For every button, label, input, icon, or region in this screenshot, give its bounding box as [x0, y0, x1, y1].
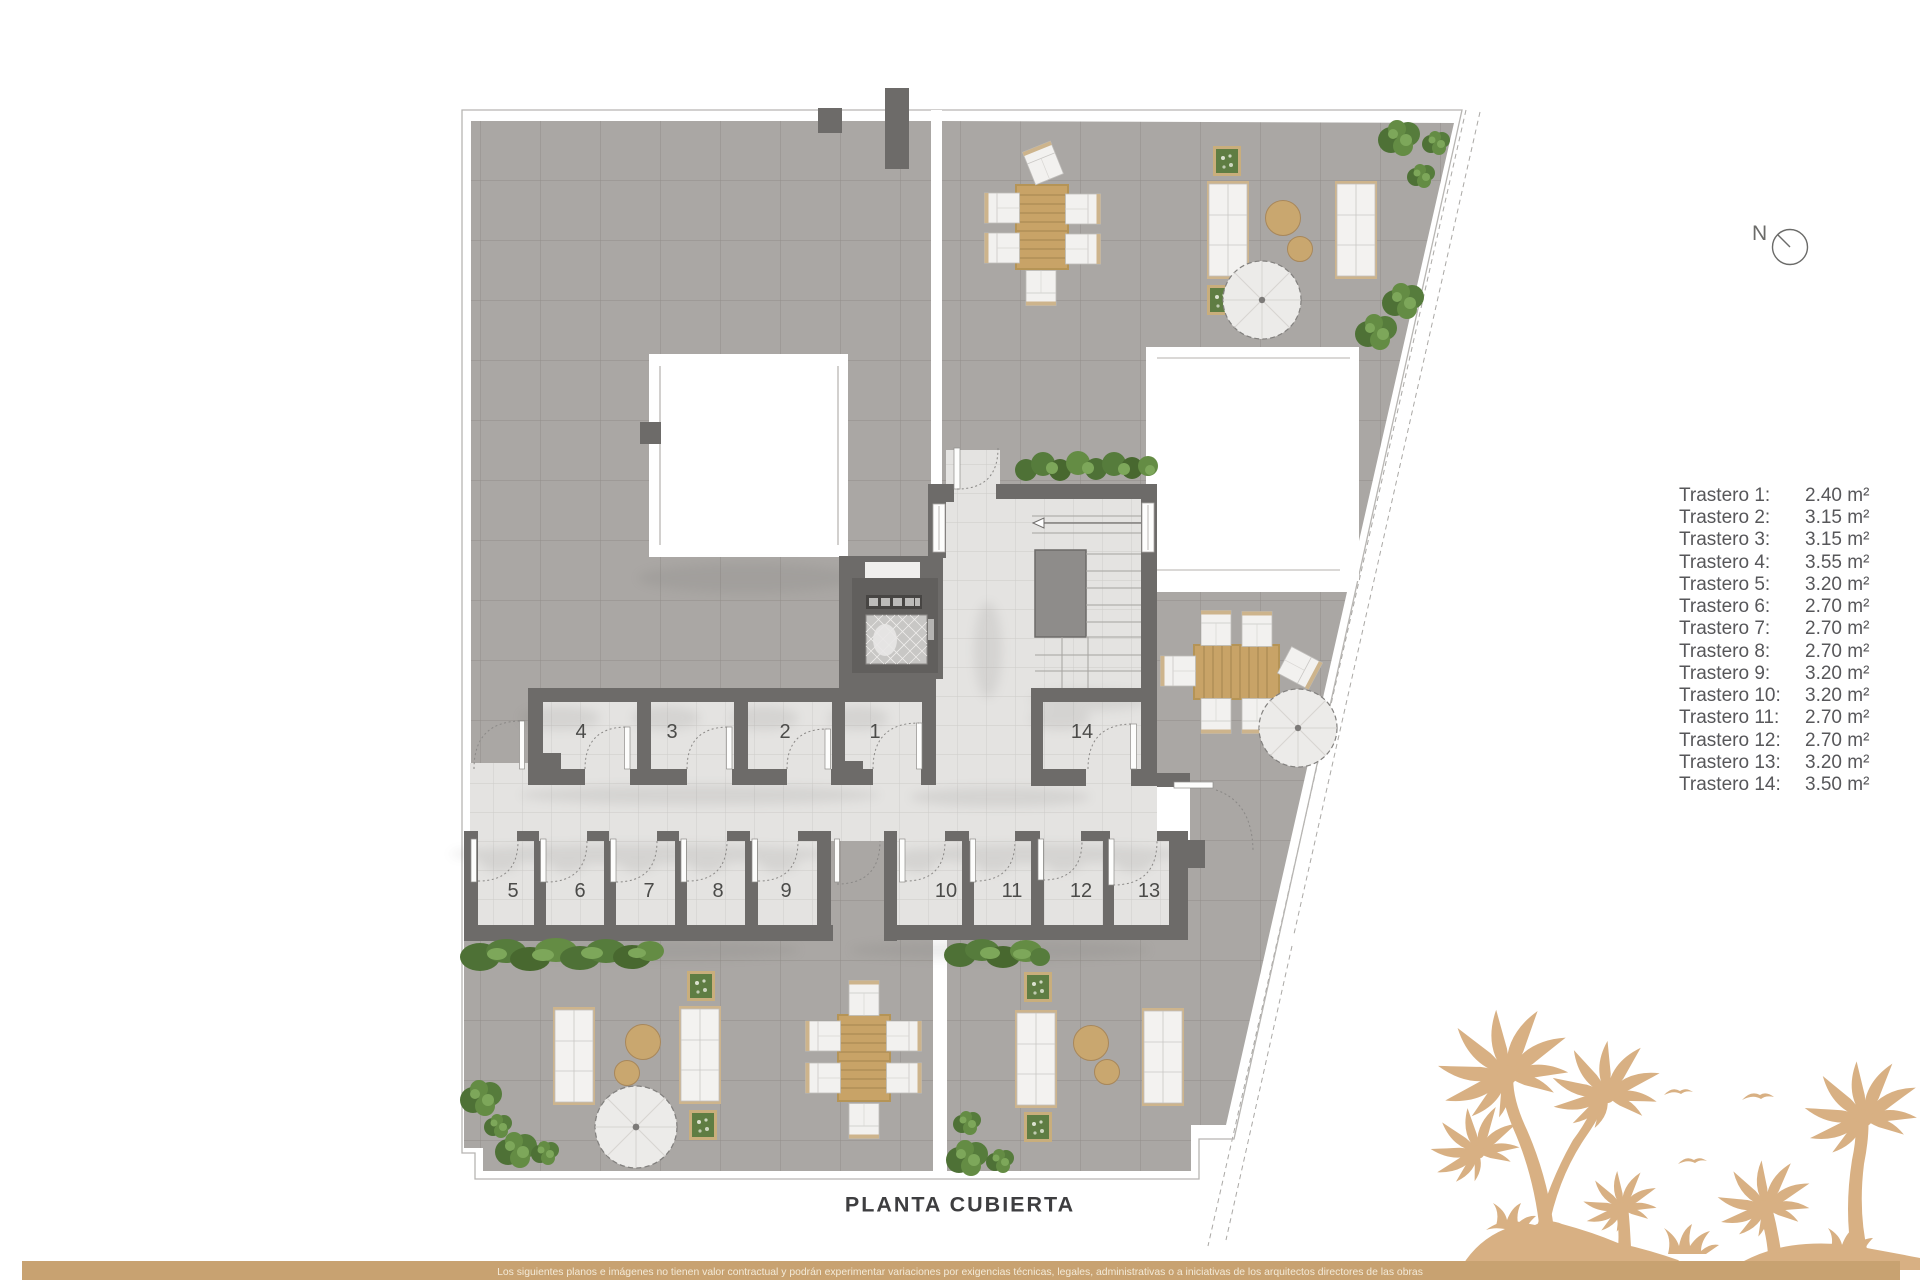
svg-text:PLANTA CUBIERTA: PLANTA CUBIERTA — [845, 1193, 1075, 1217]
svg-text:Los siguientes planos e imágen: Los siguientes planos e imágenes no tien… — [497, 1267, 1423, 1278]
svg-text:Trastero 8:: Trastero 8: — [1679, 641, 1770, 662]
svg-text:3.20 m²: 3.20 m² — [1805, 574, 1869, 595]
svg-text:14: 14 — [1071, 721, 1093, 743]
svg-text:3.20 m²: 3.20 m² — [1805, 685, 1869, 706]
svg-text:6: 6 — [574, 880, 585, 902]
svg-text:Trastero 5:: Trastero 5: — [1679, 574, 1770, 595]
svg-text:4: 4 — [575, 721, 586, 743]
svg-text:Trastero 11:: Trastero 11: — [1679, 707, 1779, 728]
svg-text:2.70 m²: 2.70 m² — [1805, 641, 1869, 662]
svg-text:Trastero 6:: Trastero 6: — [1679, 596, 1770, 617]
svg-text:2.70 m²: 2.70 m² — [1805, 730, 1869, 751]
svg-text:3.55 m²: 3.55 m² — [1805, 552, 1869, 573]
svg-text:Trastero 2:: Trastero 2: — [1679, 507, 1770, 528]
svg-text:11: 11 — [1002, 880, 1023, 902]
svg-text:13: 13 — [1138, 880, 1160, 902]
svg-text:3: 3 — [666, 721, 677, 743]
svg-text:5: 5 — [507, 880, 518, 902]
svg-text:3.20 m²: 3.20 m² — [1805, 752, 1869, 773]
svg-text:Trastero 13:: Trastero 13: — [1679, 752, 1781, 773]
svg-text:2.70 m²: 2.70 m² — [1805, 596, 1869, 617]
svg-text:Trastero 4:: Trastero 4: — [1679, 552, 1770, 573]
svg-text:3.20 m²: 3.20 m² — [1805, 663, 1869, 684]
svg-text:2: 2 — [779, 721, 790, 743]
svg-text:1: 1 — [869, 721, 880, 743]
svg-text:2.40 m²: 2.40 m² — [1805, 485, 1869, 506]
svg-text:Trastero 12:: Trastero 12: — [1679, 730, 1781, 751]
svg-text:2.70 m²: 2.70 m² — [1805, 707, 1869, 728]
svg-text:Trastero 1:: Trastero 1: — [1679, 485, 1770, 506]
svg-text:Trastero 3:: Trastero 3: — [1679, 529, 1770, 550]
svg-text:3.50 m²: 3.50 m² — [1805, 774, 1869, 795]
svg-text:Trastero 10:: Trastero 10: — [1679, 685, 1781, 706]
svg-text:Trastero 9:: Trastero 9: — [1679, 663, 1770, 684]
svg-text:8: 8 — [712, 880, 723, 902]
svg-text:N: N — [1752, 222, 1767, 245]
svg-text:3.15 m²: 3.15 m² — [1805, 507, 1869, 528]
svg-text:12: 12 — [1070, 880, 1092, 902]
svg-text:2.70 m²: 2.70 m² — [1805, 618, 1869, 639]
svg-text:7: 7 — [643, 880, 654, 902]
svg-text:Trastero 7:: Trastero 7: — [1679, 618, 1770, 639]
svg-text:9: 9 — [780, 880, 791, 902]
svg-text:10: 10 — [935, 880, 957, 902]
svg-text:Trastero 14:: Trastero 14: — [1679, 774, 1781, 795]
svg-text:3.15 m²: 3.15 m² — [1805, 529, 1869, 550]
